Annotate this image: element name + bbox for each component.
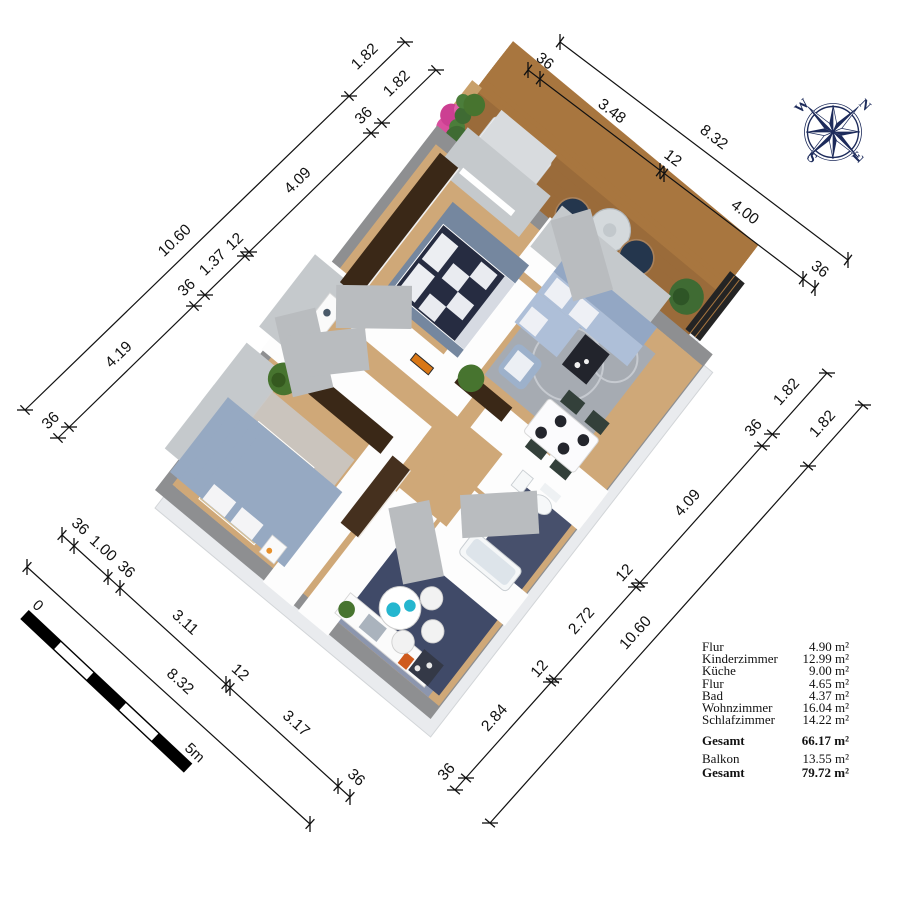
dim-label: 12	[613, 561, 637, 585]
area-row: Balkon13.55 m²	[702, 753, 849, 765]
dim-label: 3.11	[169, 607, 202, 639]
area-table: Flur4.90 m² Kinderzimmer12.99 m² Küche9.…	[702, 641, 849, 779]
dim-label: 1.82	[806, 407, 839, 441]
dim-label: 1.82	[348, 40, 382, 73]
dim-label: 4.09	[671, 486, 704, 520]
area-row: Schlafzimmer14.22 m²	[702, 714, 849, 726]
room-area: 66.17 m²	[802, 735, 849, 747]
compass-north-label: N	[856, 97, 874, 115]
dim-label: 36	[742, 416, 766, 440]
dim-label: 36	[114, 558, 138, 582]
dim-label: 1.82	[380, 67, 414, 100]
room-area: 14.22 m²	[802, 714, 849, 726]
dim-label: 1.82	[770, 375, 803, 409]
room-name: Gesamt	[702, 767, 745, 779]
dim-label: 36	[68, 515, 92, 539]
room-name: Gesamt	[702, 735, 745, 747]
room-name: Schlafzimmer	[702, 714, 775, 726]
compass-south-label: S	[803, 150, 819, 166]
dim-label: 12	[528, 657, 552, 681]
dim-label: 10.60	[155, 221, 195, 260]
room-area: 79.72 m²	[802, 767, 849, 779]
floorplan-page: 10.60 1.82 36 4.19 36 1.37 12 4.09 36 1.…	[0, 0, 900, 908]
dim-label: 2.84	[478, 701, 511, 735]
area-row-total: Gesamt66.17 m²	[702, 735, 849, 747]
area-row-total: Gesamt79.72 m²	[702, 767, 849, 779]
dim-label: 36	[175, 276, 199, 300]
room-name: Balkon	[702, 753, 740, 765]
dim-label: 3.17	[279, 707, 313, 740]
dim-label: 12	[223, 230, 247, 254]
dim-label: 1.00	[86, 532, 120, 565]
dim-label: 36	[808, 257, 832, 281]
dim-label: 2.72	[565, 604, 598, 638]
compass-rose: N W S E	[792, 96, 873, 166]
dim-label: 36	[352, 104, 376, 128]
dim-label: 1.37	[196, 246, 230, 279]
dim-label: 12	[228, 661, 252, 685]
room-area: 13.55 m²	[802, 753, 849, 765]
dim-label: 36	[435, 760, 459, 784]
dim-label: 36	[39, 409, 63, 433]
compass-west-label: W	[792, 96, 813, 117]
dim-label: 4.19	[102, 338, 136, 371]
scale-start-label: 0	[29, 597, 47, 615]
dim-label: 36	[344, 766, 368, 790]
dim-label: 8.32	[163, 665, 197, 698]
floor-plan	[150, 47, 770, 718]
dim-label: 10.60	[616, 613, 655, 653]
